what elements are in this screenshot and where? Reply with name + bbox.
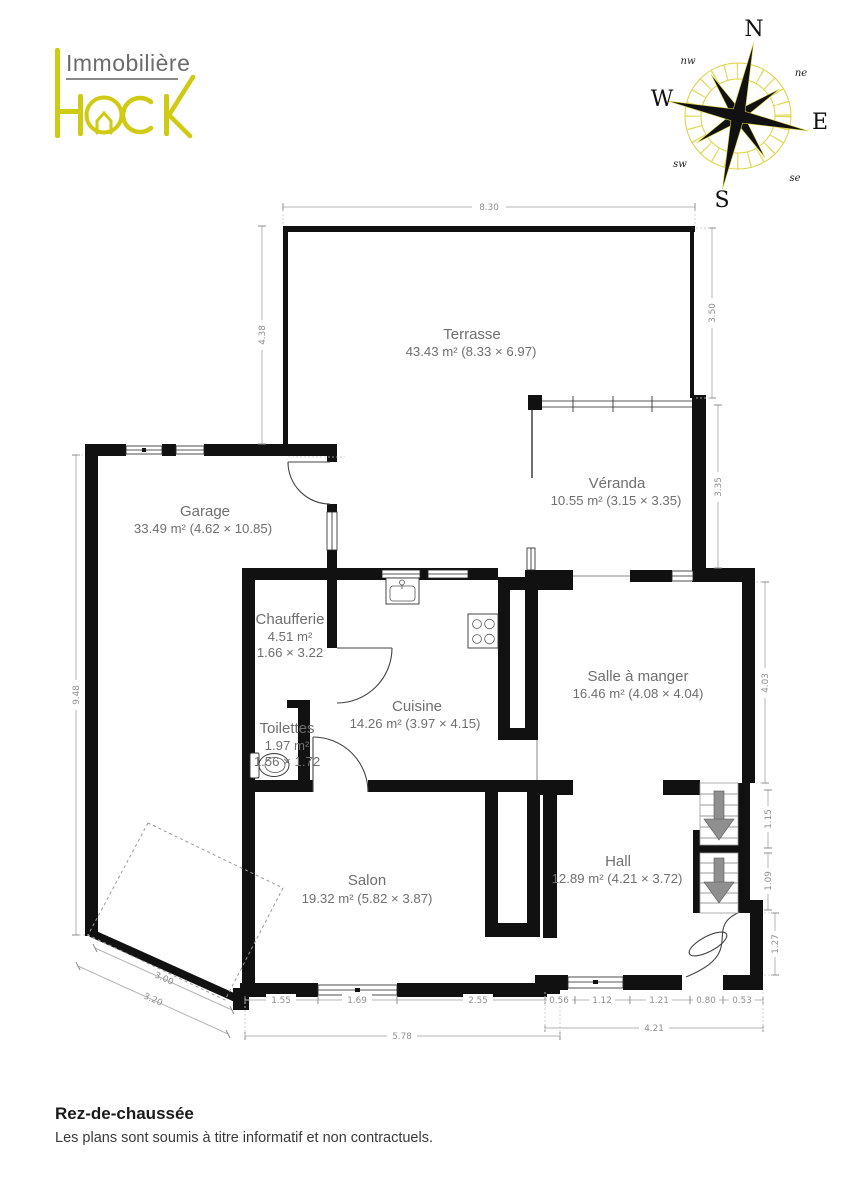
room-label-salon: Salon 19.32 m² (5.82 × 3.87) <box>302 872 433 906</box>
window <box>428 570 468 578</box>
dim-salon-seg2: 1.69 <box>347 996 367 1006</box>
svg-text:Chaufferie: Chaufferie <box>256 611 325 628</box>
svg-text:Garage: Garage <box>180 503 230 520</box>
window <box>126 446 162 454</box>
floor-title: Rez-de-chaussée <box>55 1104 433 1124</box>
logo-h-bar <box>55 109 83 114</box>
room-label-chaufferie: Chaufferie 4.51 m² 1.66 × 3.22 <box>256 611 325 660</box>
stove-icon <box>468 614 498 648</box>
dim-hall-seg2: 1.12 <box>592 996 612 1006</box>
svg-text:1.66 × 3.22: 1.66 × 3.22 <box>257 645 323 660</box>
svg-text:1.56 × 1.72: 1.56 × 1.72 <box>254 754 320 769</box>
staircase-lower <box>700 853 738 913</box>
svg-text:10.55 m² (3.15 × 3.35): 10.55 m² (3.15 × 3.35) <box>551 493 682 508</box>
compass-rose: N E S W nw ne sw se <box>651 17 828 213</box>
compass-label-nw: nw <box>681 56 696 67</box>
dim-salon-seg1: 1.55 <box>271 996 291 1006</box>
logo-k-arm-up <box>169 77 193 115</box>
room-label-cuisine: Cuisine 14.26 m² (3.97 × 4.15) <box>350 698 481 731</box>
dim-hall-seg1: 0.56 <box>549 996 569 1006</box>
room-label-salle-a-manger: Salle à manger 16.46 m² (4.08 × 4.04) <box>573 668 704 701</box>
compass-label-e: E <box>812 110 828 135</box>
window <box>318 985 397 995</box>
veranda-glazing <box>528 395 692 412</box>
svg-text:4.51 m²: 4.51 m² <box>268 629 313 644</box>
agency-logo: Immobilière <box>55 48 193 138</box>
room-label-hall: Hall 12.89 m² (4.21 × 3.72) <box>552 853 683 886</box>
garage-door <box>288 462 330 504</box>
sink-icon <box>386 578 419 604</box>
dim-stair-upper: 1.15 <box>764 809 774 829</box>
dim-terrasse-right: 3.50 <box>708 303 718 323</box>
dim-terrasse-width: 8.30 <box>479 203 499 213</box>
room-labels: Terrasse 43.43 m² (8.33 × 6.97) Véranda … <box>134 326 704 906</box>
svg-text:Terrasse: Terrasse <box>443 326 501 343</box>
dim-veranda-right: 3.35 <box>714 477 724 497</box>
floor-plan-page: Immobilière N E S W nw ne sw se <box>0 0 848 1200</box>
svg-text:12.89 m² (4.21 × 3.72): 12.89 m² (4.21 × 3.72) <box>552 871 683 886</box>
window <box>527 548 535 570</box>
dim-hall-total: 4.21 <box>644 1024 664 1034</box>
room-label-veranda: Véranda 10.55 m² (3.15 × 3.35) <box>551 475 682 508</box>
window <box>568 977 623 988</box>
compass-label-sw: sw <box>673 159 687 170</box>
window <box>382 570 420 578</box>
svg-text:Cuisine: Cuisine <box>392 698 442 715</box>
dim-salon-total: 5.78 <box>392 1032 412 1042</box>
svg-text:16.46 m² (4.08 × 4.04): 16.46 m² (4.08 × 4.04) <box>573 686 704 701</box>
window <box>327 512 337 550</box>
logo-h-stem <box>78 94 83 136</box>
compass-label-w: W <box>651 87 674 112</box>
svg-text:1.97 m²: 1.97 m² <box>265 738 310 753</box>
logo-divider <box>66 78 178 80</box>
room-label-toilettes: Toilettes 1.97 m² 1.56 × 1.72 <box>254 720 320 769</box>
dim-salle-right: 4.03 <box>761 673 771 693</box>
svg-text:19.32 m² (5.82 × 3.87): 19.32 m² (5.82 × 3.87) <box>302 891 433 906</box>
window <box>672 571 693 581</box>
chaufferie-door <box>337 648 392 703</box>
disclaimer-text: Les plans sont soumis à titre informatif… <box>55 1130 433 1146</box>
dim-driveway-outer: 3.20 <box>142 992 164 1009</box>
logo-brand <box>55 77 193 136</box>
logo-k-arm-down <box>169 115 190 136</box>
dim-terrasse-left: 4.38 <box>258 325 268 345</box>
svg-text:Salle à manger: Salle à manger <box>588 668 689 685</box>
svg-text:33.49 m² (4.62 × 10.85): 33.49 m² (4.62 × 10.85) <box>134 521 272 536</box>
footer: Rez-de-chaussée Les plans sont soumis à … <box>55 1104 433 1146</box>
window <box>176 446 204 454</box>
logo-c <box>123 98 151 132</box>
svg-text:14.26 m² (3.97 × 4.15): 14.26 m² (3.97 × 4.15) <box>350 716 481 731</box>
dim-entry-right: 1.27 <box>771 934 781 954</box>
dim-hall-seg5: 0.53 <box>732 996 752 1006</box>
svg-text:Hall: Hall <box>605 853 631 870</box>
compass-label-ne: ne <box>795 68 807 79</box>
staircase-upper <box>700 783 738 845</box>
floor-plan-drawing: Immobilière N E S W nw ne sw se <box>0 0 848 1200</box>
entry-door <box>686 912 740 977</box>
room-label-terrasse: Terrasse 43.43 m² (8.33 × 6.97) <box>406 326 537 359</box>
svg-text:Toilettes: Toilettes <box>259 720 314 737</box>
dim-hall-seg3: 1.21 <box>649 996 669 1006</box>
svg-text:43.43 m² (8.33 × 6.97): 43.43 m² (8.33 × 6.97) <box>406 344 537 359</box>
logo-line1: Immobilière <box>66 50 190 76</box>
dim-salon-seg3: 2.55 <box>468 996 488 1006</box>
compass-label-n: N <box>744 17 763 42</box>
compass-label-s: S <box>714 188 729 213</box>
dim-garage-left: 9.48 <box>72 685 82 705</box>
svg-text:Véranda: Véranda <box>589 475 646 492</box>
salon-door <box>313 737 368 792</box>
compass-label-se: se <box>789 173 800 184</box>
dim-hall-seg4: 0.80 <box>696 996 716 1006</box>
logo-bar <box>55 48 60 138</box>
dimension-annotations: 8.30 4.38 9.48 3.50 3.35 4.03 1.15 <box>70 201 781 1042</box>
svg-text:Salon: Salon <box>348 872 386 889</box>
dim-stair-lower: 1.09 <box>764 871 774 891</box>
room-label-garage: Garage 33.49 m² (4.62 × 10.85) <box>134 503 272 536</box>
